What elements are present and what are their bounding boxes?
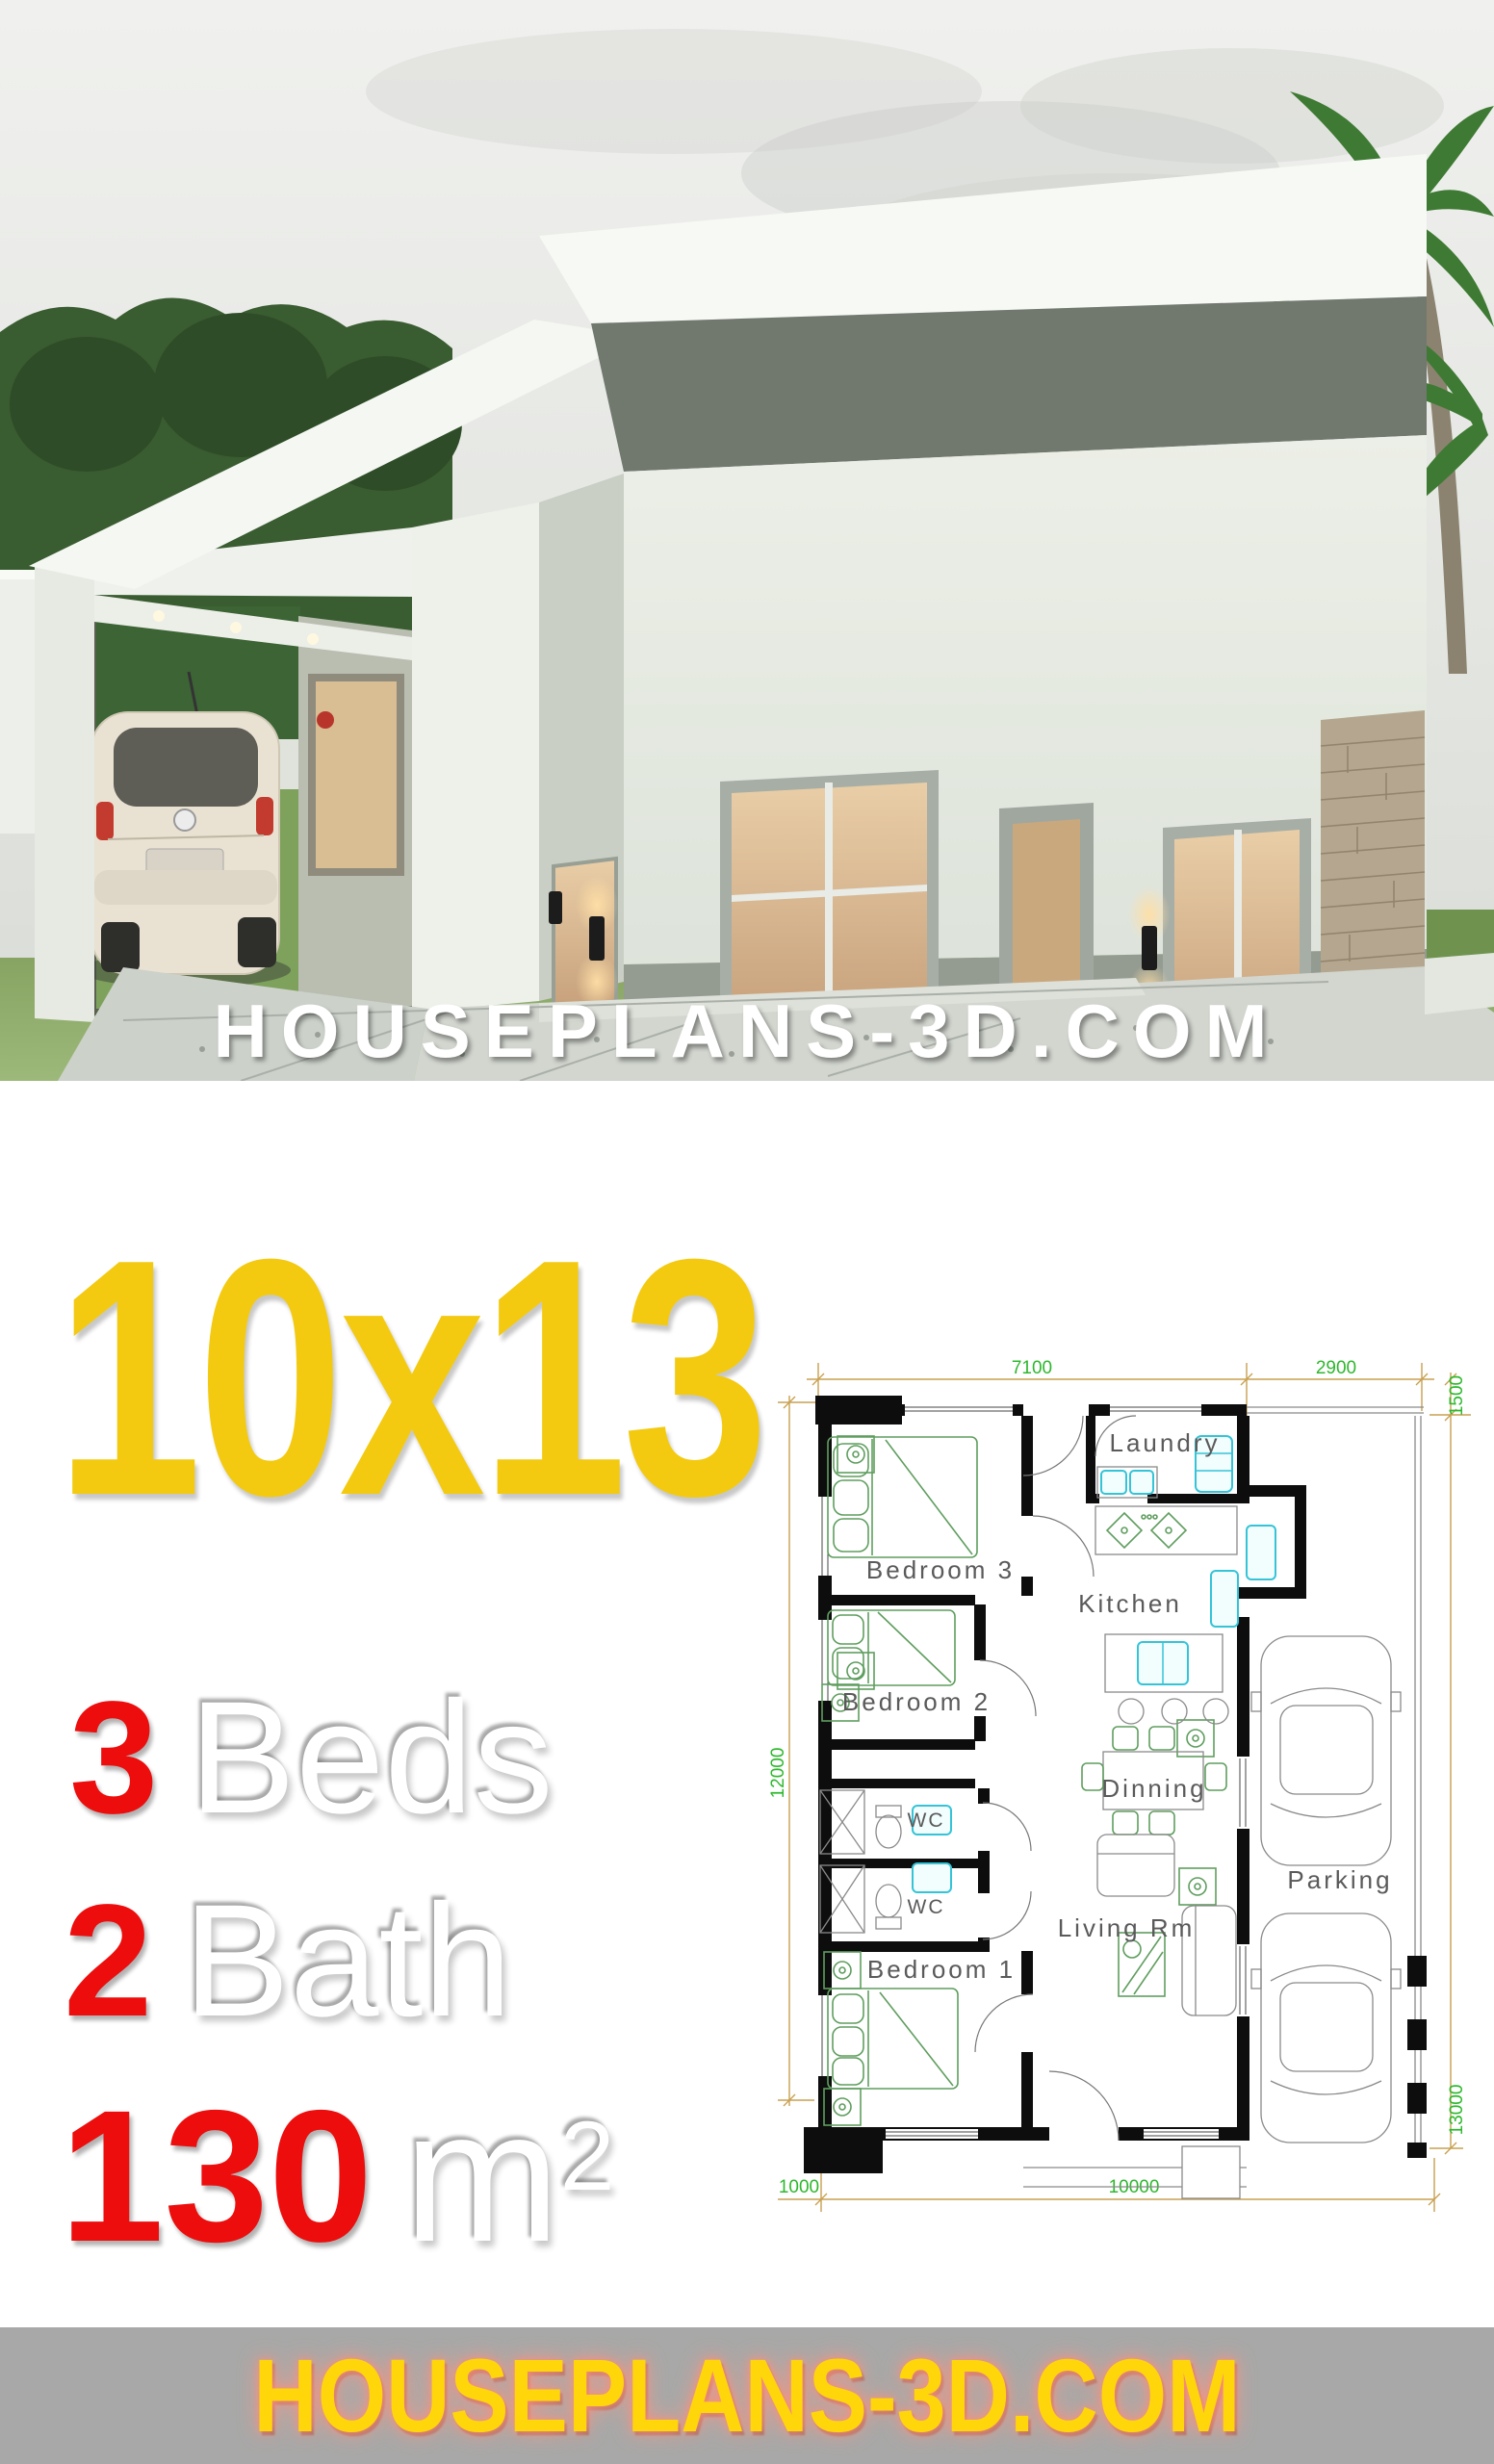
carport-pillar-right bbox=[412, 502, 539, 1013]
label-wc2: WC bbox=[908, 1896, 945, 1918]
car-wheel-left bbox=[101, 922, 140, 972]
car-wheel-right bbox=[238, 917, 276, 967]
bath-spec: 2Bath bbox=[64, 1882, 512, 2041]
footer-banner: HOUSEPLANS-3D.COM bbox=[0, 2327, 1494, 2464]
area-superscript: 2 bbox=[560, 2101, 615, 2211]
label-wc1: WC bbox=[908, 1809, 945, 1832]
label-bedroom3: Bedroom 3 bbox=[866, 1555, 1015, 1584]
wall-lamp-recessed bbox=[549, 891, 562, 924]
house-render-illustration bbox=[0, 0, 1494, 1081]
house-3d-render: HOUSEPLANS-3D.COM bbox=[0, 0, 1494, 1081]
parking-area bbox=[1247, 1407, 1427, 2158]
car bbox=[79, 672, 291, 988]
dim-bottom-offset: 1000 bbox=[779, 2177, 819, 2197]
car-logo bbox=[174, 809, 195, 831]
walls bbox=[804, 1396, 1306, 2173]
area-spec: 130m2 bbox=[60, 2083, 615, 2271]
floor-plan-drawing: 7100 2900 1500 13000 12000 1000 10000 bbox=[760, 1328, 1494, 2252]
dim-right-setback: 1500 bbox=[1447, 1375, 1467, 1416]
beds-count: 3 bbox=[69, 1669, 158, 1847]
plot-size-label: 10x13 bbox=[56, 1210, 764, 1547]
car-taillight-right bbox=[256, 797, 273, 835]
car-rear-window bbox=[114, 728, 258, 807]
label-parking: Parking bbox=[1287, 1865, 1392, 1894]
car-taillight-left bbox=[96, 802, 114, 840]
label-laundry: Laundry bbox=[1110, 1428, 1221, 1457]
area-unit: m bbox=[403, 2071, 559, 2281]
bath-count: 2 bbox=[64, 1872, 152, 2050]
label-bedroom2: Bedroom 2 bbox=[842, 1687, 991, 1716]
label-bedroom1: Bedroom 1 bbox=[867, 1955, 1016, 1984]
beds-label: Beds bbox=[189, 1669, 553, 1847]
bed-1 bbox=[828, 1989, 958, 2089]
label-kitchen: Kitchen bbox=[1078, 1589, 1182, 1618]
carport-pillar-left bbox=[35, 562, 94, 1022]
hero-watermark: HOUSEPLANS-3D.COM bbox=[0, 993, 1494, 1068]
area-value: 130 bbox=[60, 2071, 373, 2281]
dim-top-main: 7100 bbox=[1012, 1358, 1052, 1378]
footer-brand: HOUSEPLANS-3D.COM bbox=[112, 2341, 1381, 2450]
parked-car bbox=[1251, 1636, 1401, 1865]
bath-label: Bath bbox=[183, 1872, 511, 2050]
bed-3 bbox=[828, 1437, 977, 1557]
dim-right-depth: 13000 bbox=[1447, 2085, 1467, 2136]
label-dinning: Dinning bbox=[1101, 1774, 1206, 1803]
floor-plan: 7100 2900 1500 13000 12000 1000 10000 bbox=[760, 1328, 1494, 2252]
beds-spec: 3Beds bbox=[69, 1679, 554, 1838]
dim-top-parking: 2900 bbox=[1316, 1358, 1356, 1378]
dim-left-depth: 12000 bbox=[768, 1748, 788, 1799]
label-living: Living Rm bbox=[1058, 1913, 1196, 1942]
